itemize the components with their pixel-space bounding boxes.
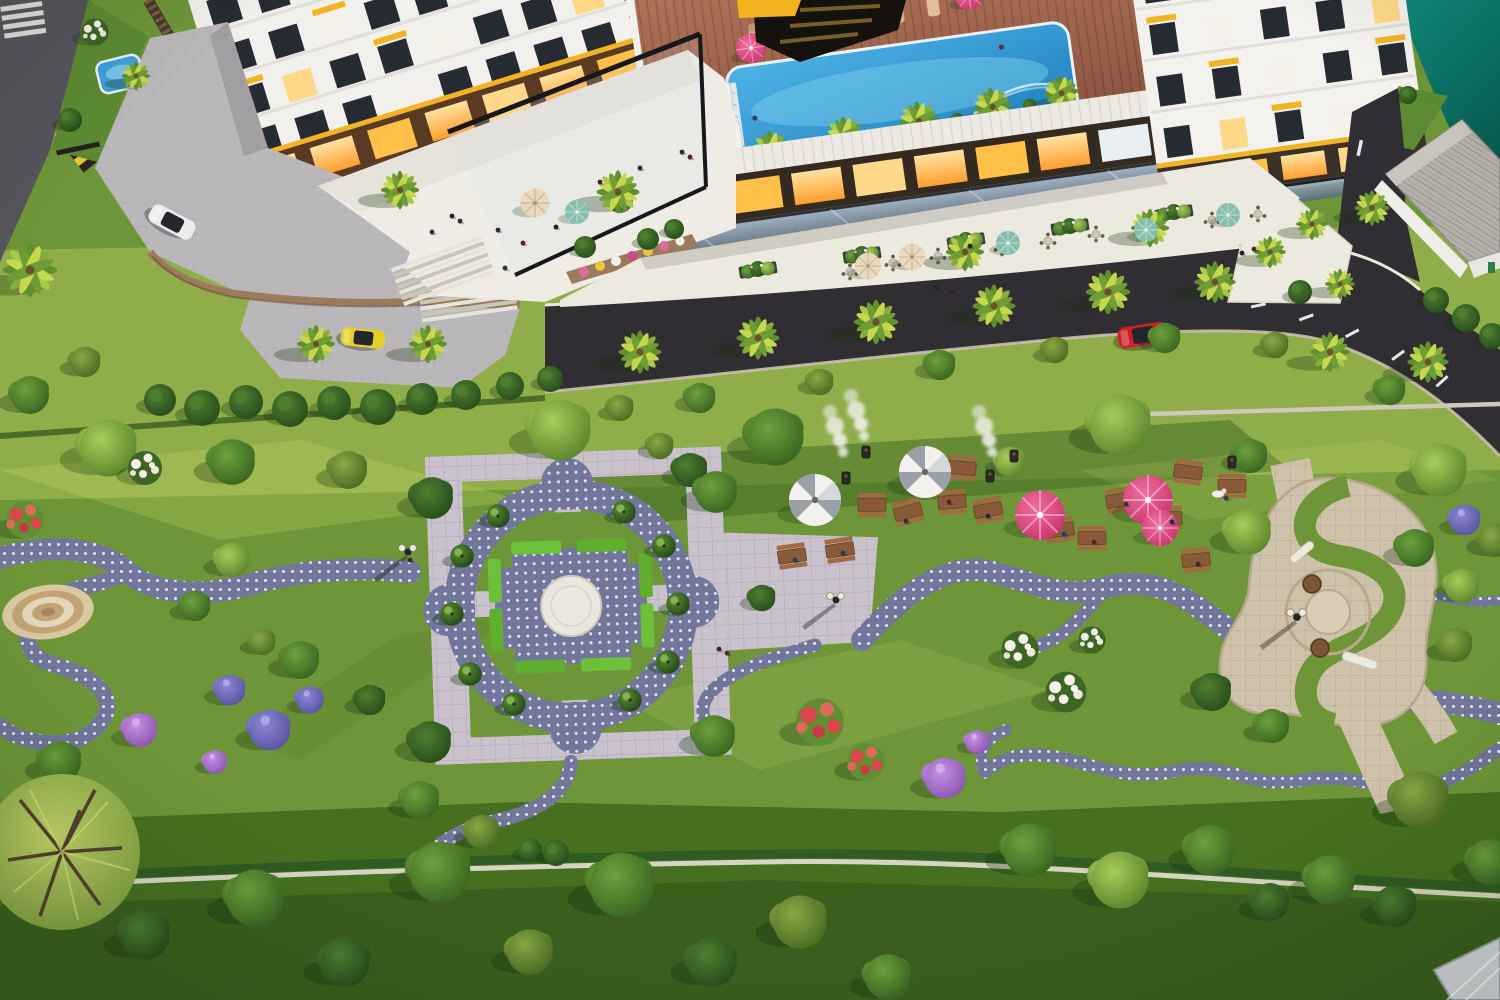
round-table bbox=[1303, 575, 1321, 593]
yellow-awning bbox=[737, 0, 801, 18]
picnic-table bbox=[947, 455, 977, 481]
bbq-grill bbox=[986, 470, 994, 482]
central-medallion bbox=[540, 575, 602, 637]
picnic-table bbox=[1181, 547, 1211, 574]
bbq-grill bbox=[1228, 456, 1236, 468]
round-table bbox=[1311, 639, 1329, 657]
villa-door bbox=[1488, 262, 1495, 273]
picnic-table bbox=[824, 536, 855, 564]
bbq-grill bbox=[842, 472, 850, 484]
picnic-table bbox=[776, 542, 807, 570]
picnic-table bbox=[1172, 458, 1203, 486]
bbq-grill bbox=[1010, 450, 1018, 462]
picnic-table bbox=[1078, 526, 1106, 550]
picnic-table bbox=[858, 493, 886, 517]
bbq-grill bbox=[862, 446, 870, 458]
picnic-table bbox=[972, 496, 1004, 524]
picnic-table bbox=[937, 489, 967, 515]
scene-canvas bbox=[0, 0, 1500, 1000]
aerial-rendering bbox=[0, 0, 1500, 1000]
